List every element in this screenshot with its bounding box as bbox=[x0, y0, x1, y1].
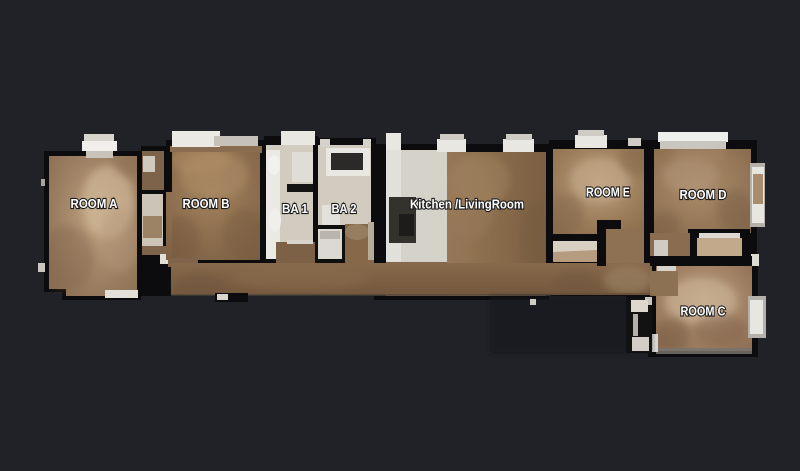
svg-text:ROOM A: ROOM A bbox=[71, 196, 119, 211]
svg-text:ROOM C: ROOM C bbox=[681, 304, 727, 319]
svg-text:ROOM D: ROOM D bbox=[680, 187, 727, 202]
svg-text:Kitchen /LivingRoom: Kitchen /LivingRoom bbox=[410, 197, 524, 212]
svg-text:ROOM B: ROOM B bbox=[183, 196, 230, 211]
svg-text:ROOM E: ROOM E bbox=[586, 185, 630, 200]
svg-text:BA 2: BA 2 bbox=[332, 201, 357, 216]
svg-text:BA 1: BA 1 bbox=[282, 201, 308, 216]
